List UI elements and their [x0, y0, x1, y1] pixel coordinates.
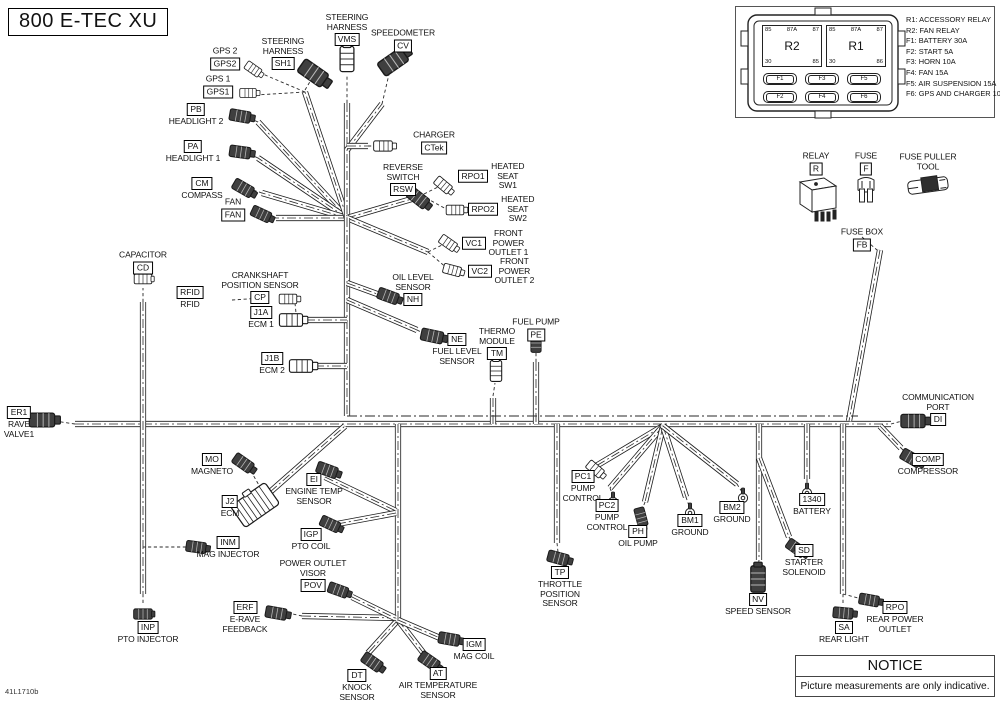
component-label-ei: EIENGINE TEMPSENSOR [285, 473, 342, 506]
component-code: PH [629, 525, 648, 538]
component-name: ECM 2 [259, 366, 284, 376]
relay-name: R1 [829, 41, 883, 51]
pin-label: 87 [813, 27, 819, 33]
component-label-rpo1: RPO1HEATEDSEATSW1 [458, 162, 524, 191]
component-code: CTek [421, 141, 447, 154]
component-code: INP [137, 621, 158, 634]
component-name: RELAY [803, 152, 830, 162]
component-code: MO [202, 453, 223, 466]
component-code: SA [835, 621, 853, 634]
component-name: FUEL LEVELSENSOR [432, 347, 481, 366]
component-label-er1: ER1RAVEVALVE1 [4, 406, 34, 439]
component-code: CV [394, 39, 413, 52]
pin-label: 30 [765, 59, 771, 65]
component-code: BM1 [678, 514, 702, 527]
fuse-label: F5 [850, 75, 878, 84]
component-code: J2 [222, 495, 238, 508]
relay-name: R2 [765, 41, 819, 51]
component-name: ENGINE TEMPSENSOR [285, 487, 342, 506]
component-code: SD [795, 544, 814, 557]
component-code: COMP [912, 453, 945, 466]
component-label-ctek: CHARGERCTek [413, 131, 455, 155]
component-label-cp: CRANKSHAFTPOSITION SENSORCP [221, 271, 298, 304]
component-label-j1a: J1AECM 1 [248, 306, 273, 330]
component-code: FB [853, 238, 871, 251]
component-label-sa: SAREAR LIGHT [819, 621, 869, 645]
component-name: SPEEDOMETER [371, 29, 435, 39]
component-label-f: FUSEF [855, 152, 877, 176]
component-label-inp: INPPTO INJECTOR [118, 621, 179, 645]
page-title: 800 E-TEC XU [8, 8, 168, 36]
component-label-mo: MOMAGNETO [191, 453, 233, 477]
component-name: AIR TEMPERATURESENSOR [399, 681, 477, 700]
relay-slot-r2: 8587A87R23085 [762, 25, 822, 67]
component-code: ERF [233, 601, 257, 614]
fuse-legend-item: R1: ACCESSORY RELAY [906, 15, 1000, 26]
notice-body: Picture measurements are only indicative… [796, 677, 994, 696]
component-label-rpo2: RPO2HEATEDSEATSW2 [468, 195, 534, 224]
fuse-slot-f3: F3 [805, 73, 839, 85]
pin-label: 86 [877, 59, 883, 65]
component-name: FUSE BOX [841, 228, 883, 238]
fuse-label: F6 [850, 93, 878, 102]
component-label-inm: INMMAG INJECTOR [197, 536, 260, 560]
fuse-legend-item: F3: HORN 10A [906, 57, 1000, 68]
component-code: GPS2 [210, 57, 240, 70]
component-label-bm1: BM1GROUND [671, 514, 708, 538]
component-label-pov: POWER OUTLETVISORPOV [280, 559, 347, 592]
component-name: GPS 1 [206, 75, 231, 85]
component-code: PA [184, 140, 202, 153]
component-label-vc1: VC1FRONTPOWEROUTLET 1 [462, 229, 528, 258]
fuse-legend-item: F5: AIR SUSPENSION 15A [906, 79, 1000, 90]
component-code: IGM [462, 638, 485, 651]
component-label-1340: 1340BATTERY [793, 493, 831, 517]
component-label-at: ATAIR TEMPERATURESENSOR [399, 667, 477, 700]
component-label-fan: FANFAN [221, 198, 245, 222]
component-name: THERMOMODULE [479, 327, 515, 346]
component-name: FAN [225, 198, 241, 208]
pin-label: 85 [829, 27, 835, 33]
component-code: VC2 [468, 265, 492, 278]
fuse-legend-item: F4: FAN 15A [906, 68, 1000, 79]
component-label-gps2: GPS 2GPS2 [210, 47, 240, 71]
component-code: ER1 [7, 406, 31, 419]
component-code: SH1 [271, 57, 295, 70]
component-label-rfid: RFIDRFID [177, 286, 204, 310]
component-code: PC2 [595, 499, 619, 512]
component-name: FRONTPOWEROUTLET 1 [489, 229, 529, 258]
component-name: REAR LIGHT [819, 635, 869, 645]
component-code: BM2 [720, 501, 744, 514]
component-label-nh: OIL LEVELSENSORNH [392, 273, 433, 306]
component-label-pe: FUEL PUMPPE [512, 318, 559, 342]
component-code: PB [187, 103, 205, 116]
component-label-tm: THERMOMODULETM [479, 327, 515, 360]
component-code: FAN [221, 208, 245, 221]
component-name: OIL LEVELSENSOR [392, 273, 433, 292]
component-label-r: RELAYR [803, 152, 830, 176]
component-name: ECM [221, 509, 240, 519]
pin-label: 85 [765, 27, 771, 33]
component-name: CAPACITOR [119, 251, 167, 261]
component-label-pa: PAHEADLIGHT 1 [166, 140, 220, 164]
component-name: FUEL PUMP [512, 318, 559, 328]
component-label-igm: IGMMAG COIL [454, 638, 495, 662]
component-label-di: COMMUNICATIONPORTDI [902, 393, 974, 426]
component-code: PE [527, 328, 545, 341]
component-name: PTO INJECTOR [118, 635, 179, 645]
component-name: E-RAVEFEEDBACK [222, 615, 267, 634]
component-code: J1B [261, 352, 283, 365]
component-code: RSW [390, 183, 417, 196]
component-name: SPEED SENSOR [725, 607, 791, 617]
component-name: CRANKSHAFTPOSITION SENSOR [221, 271, 298, 290]
drawing-number: 41L1710b [5, 687, 38, 696]
component-code: IGP [300, 528, 322, 541]
component-label-tp: TPTHROTTLEPOSITIONSENSOR [538, 566, 582, 609]
component-name: BATTERY [793, 507, 831, 517]
wiring-diagram-page: 800 E-TEC XU 8587A87R230858587A87R13086F… [0, 0, 1000, 707]
component-code: F [860, 162, 872, 175]
component-name: STARTERSOLENOID [782, 558, 825, 577]
component-name: RAVEVALVE1 [4, 420, 34, 439]
component-name: MAG COIL [454, 652, 495, 662]
component-label-pb: PBHEADLIGHT 2 [169, 103, 223, 127]
component-name: HEATEDSEATSW1 [491, 162, 524, 191]
fuse-label: F2 [766, 93, 794, 102]
component-code: VC1 [462, 237, 486, 250]
component-code: CD [133, 261, 152, 274]
fuse-legend-item: F6: GPS AND CHARGER 10A [906, 89, 1000, 100]
fuse-puller-icon [907, 174, 949, 194]
component-code: R [809, 162, 822, 175]
component-code: AT [429, 667, 446, 680]
component-name: FUSE PULLERTOOL [899, 153, 956, 172]
component-label-dt: DTKNOCKSENSOR [339, 669, 374, 702]
component-code: POV [301, 579, 326, 592]
component-code: RPO1 [458, 170, 488, 183]
component-code: CM [192, 177, 212, 190]
component-label-gps1: GPS 1GPS1 [203, 75, 233, 99]
fuse-legend-item: F2: START 5A [906, 47, 1000, 58]
pin-label: 85 [813, 59, 819, 65]
component-name: MAGNETO [191, 467, 233, 477]
component-label-cv: SPEEDOMETERCV [371, 29, 435, 53]
notice-box: NOTICE Picture measurements are only ind… [795, 655, 995, 697]
component-name: HEADLIGHT 1 [166, 154, 220, 164]
component-name: ECM 1 [248, 320, 273, 330]
component-name: STEERINGHARNESS [262, 37, 305, 56]
pin-label: 87A [851, 27, 861, 33]
component-label-vc2: VC2FRONTPOWEROUTLET 2 [468, 257, 534, 286]
pin-label: 87A [787, 27, 797, 33]
component-code: DT [348, 669, 366, 682]
component-name: REAR POWEROUTLET [866, 615, 923, 634]
component-name: RFID [180, 300, 199, 310]
component-label-cm: CMCOMPASS [181, 177, 222, 201]
fuse-icon [858, 178, 874, 203]
component-name: OIL PUMP [618, 539, 658, 549]
component-code: CP [251, 291, 270, 304]
fuse-slot-f2: F2 [763, 91, 797, 103]
component-label-erf: ERFE-RAVEFEEDBACK [222, 601, 267, 634]
component-code: EI [306, 473, 321, 486]
component-code: 1340 [799, 493, 825, 506]
component-label-j2: J2ECM [221, 495, 240, 519]
component-code: NE [448, 333, 467, 346]
component-label-j1b: J1BECM 2 [259, 352, 284, 376]
component-name: COMPASS [181, 191, 222, 201]
fuse-legend-item: F1: BATTERY 30A [906, 36, 1000, 47]
component-name: THROTTLEPOSITIONSENSOR [538, 580, 582, 609]
component-label-comp: COMPCOMPRESSOR [898, 453, 958, 477]
component-code: TP [551, 566, 569, 579]
fuse-label: F1 [766, 75, 794, 84]
component-name: GROUND [671, 528, 708, 538]
component-name: COMMUNICATIONPORT [902, 393, 974, 412]
component-code: DI [930, 413, 946, 426]
component-label-cd: CAPACITORCD [119, 251, 167, 275]
component-code: RPO2 [468, 203, 498, 216]
component-name: PTO COIL [292, 542, 331, 552]
component-name: FRONTPOWEROUTLET 2 [495, 257, 535, 286]
pin-label: 87 [877, 27, 883, 33]
relay-icon [800, 178, 836, 221]
component-name: KNOCKSENSOR [339, 683, 374, 702]
component-name: STEERINGHARNESS [326, 13, 369, 32]
component-name: POWER OUTLETVISOR [280, 559, 347, 578]
component-label-vms: STEERINGHARNESSVMS [326, 13, 369, 46]
fuse-slot-f5: F5 [847, 73, 881, 85]
component-label-ph: PHOIL PUMP [618, 525, 658, 549]
component-name: MAG INJECTOR [197, 550, 260, 560]
component-name: COMPRESSOR [898, 467, 958, 477]
component-label-fb: FUSE BOXFB [841, 228, 883, 252]
component-label-igp: IGPPTO COIL [292, 528, 331, 552]
component-label-rsw: REVERSESWITCHRSW [383, 163, 423, 196]
component-name: FUSE [855, 152, 877, 162]
component-code: INM [217, 536, 240, 549]
fuse-label: F3 [808, 75, 836, 84]
fuse-legend-list: R1: ACCESSORY RELAYR2: FAN RELAYF1: BATT… [906, 15, 1000, 100]
component-label-rpo: RPOREAR POWEROUTLET [866, 601, 923, 634]
component-label-ne: NEFUEL LEVELSENSOR [432, 333, 481, 366]
component-code: NV [749, 593, 768, 606]
component-label-sh1: STEERINGHARNESSSH1 [262, 37, 305, 70]
component-name: GPS 2 [213, 47, 238, 57]
relay-slot-r1: 8587A87R13086 [826, 25, 886, 67]
component-code: RPO [882, 601, 907, 614]
component-name: HEATEDSEATSW2 [501, 195, 534, 224]
fuse-label: F4 [808, 93, 836, 102]
component-label-nv: NVSPEED SENSOR [725, 593, 791, 617]
fuse-slot-f6: F6 [847, 91, 881, 103]
component-code: VMS [334, 33, 359, 46]
fuse-box-legend-panel: 8587A87R230858587A87R13086F1F3F5F2F4F6 R… [735, 6, 995, 118]
component-label-bm2: BM2GROUND [713, 501, 750, 525]
component-code: TM [487, 347, 506, 360]
component-code: RFID [177, 286, 204, 299]
component-name: GROUND [713, 515, 750, 525]
component-name: CHARGER [413, 131, 455, 141]
component-label-fuse-puller: FUSE PULLERTOOL [899, 153, 956, 172]
pin-label: 30 [829, 59, 835, 65]
fuse-legend-item: R2: FAN RELAY [906, 26, 1000, 37]
component-code: NH [403, 293, 422, 306]
component-code: J1A [250, 306, 272, 319]
notice-title: NOTICE [796, 656, 994, 677]
fuse-slot-f4: F4 [805, 91, 839, 103]
component-name: REVERSESWITCH [383, 163, 423, 182]
component-code: PC1 [571, 470, 595, 483]
component-label-sd: SDSTARTERSOLENOID [782, 544, 825, 577]
component-code: GPS1 [203, 85, 233, 98]
component-name: HEADLIGHT 2 [169, 117, 223, 127]
fuse-slot-f1: F1 [763, 73, 797, 85]
